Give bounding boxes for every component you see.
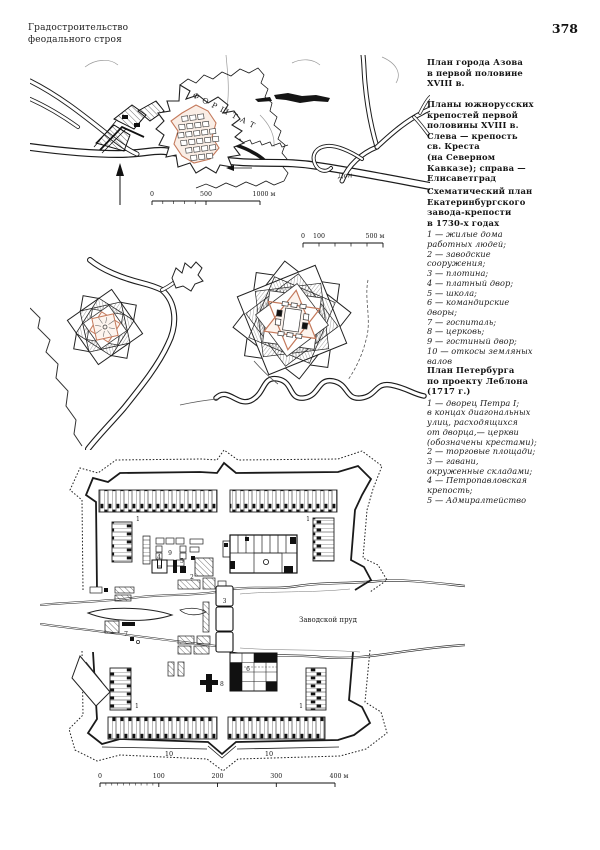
forts-scale-bar: 0 100 500 м [301, 233, 385, 248]
star-fortresses-map: 0 100 500 м [30, 228, 430, 450]
commanders-yards [230, 653, 277, 691]
svg-text:300: 300 [270, 773, 282, 780]
legend-num-1: 1 [299, 703, 303, 710]
caption-azov-title: План города Азова в первой половине XVII… [427, 57, 589, 89]
old-fortifications [94, 101, 164, 153]
legend-num-9: 9 [168, 550, 172, 557]
svg-text:0: 0 [98, 773, 102, 780]
fort-elisavetgrad [227, 255, 357, 385]
legend-num-1: 1 [135, 703, 139, 710]
svg-text:500: 500 [200, 191, 212, 198]
yekaterinburg-plan-map: Заводской пруд 10 10 1 1 1 1 9 [40, 440, 465, 800]
don-river-label: Дон [337, 171, 353, 180]
book-page: { "header": { "running_title": "Градостр… [0, 0, 600, 850]
fort-sv-kresta [61, 283, 149, 371]
church [200, 674, 218, 692]
svg-text:500 м: 500 м [366, 233, 385, 240]
caption-yekaterinburg: Схематический план Екатеринбургского зав… [427, 186, 589, 366]
caption-petersburg-legend: 1 — дворец Петра I; в концах диагональны… [427, 399, 589, 506]
legend-num-7: 7 [124, 631, 128, 638]
rampart-label-10: 10 [265, 750, 273, 758]
caption-south-forts-title: Планы южнорусских крепостей первой полов… [427, 99, 589, 184]
coastline-detail [85, 55, 398, 147]
svg-text:0: 0 [301, 233, 305, 240]
azov-plan-map: ФОРШТАТ Дон 0 500 1000 м [30, 55, 430, 240]
factory-pond [40, 580, 465, 657]
legend-num-5: 5 [180, 558, 184, 565]
svg-text:400 м: 400 м [330, 773, 349, 780]
running-title: Градостроительство феодального строя [28, 22, 128, 46]
svg-text:100: 100 [313, 233, 325, 240]
caption-petersburg: План Петербурга по проекту Леблона (1717… [427, 365, 589, 506]
rampart-label-10: 10 [165, 750, 173, 758]
azov-scale-bar: 0 500 1000 м [150, 191, 276, 205]
dam [216, 586, 233, 652]
pond-label: Заводской пруд [299, 616, 358, 624]
north-arrow [116, 163, 124, 205]
caption-petersburg-title: План Петербурга по проекту Леблона (1717… [427, 365, 589, 397]
legend-num-1: 1 [306, 516, 310, 523]
legend-num-6: 6 [246, 666, 250, 673]
svg-text:200: 200 [211, 773, 223, 780]
small-row [143, 536, 150, 564]
factory-complex [223, 535, 297, 573]
hatched-yard [195, 558, 213, 576]
svg-text:0: 0 [150, 191, 154, 198]
caption-azov: План города Азова в первой половине XVII… [427, 57, 589, 89]
legend-num-3: 3 [223, 598, 227, 605]
caption-south-forts: Планы южнорусских крепостей первой полов… [427, 99, 589, 184]
caption-yekaterinburg-legend: 1 — жилые дома работных людей; 2 — завод… [427, 230, 589, 366]
legend-num-4: 4 [157, 554, 161, 561]
rivers [30, 260, 424, 449]
legend-num-1: 1 [136, 516, 140, 523]
page-number: 378 [552, 21, 578, 36]
ekb-scale-bar: 0 100 200 300 400 м [98, 773, 349, 787]
legend-num-8: 8 [220, 681, 224, 688]
svg-text:1000 м: 1000 м [253, 191, 276, 198]
caption-yekaterinburg-title: Схематический план Екатеринбургского зав… [427, 186, 589, 228]
svg-text:100: 100 [153, 773, 165, 780]
